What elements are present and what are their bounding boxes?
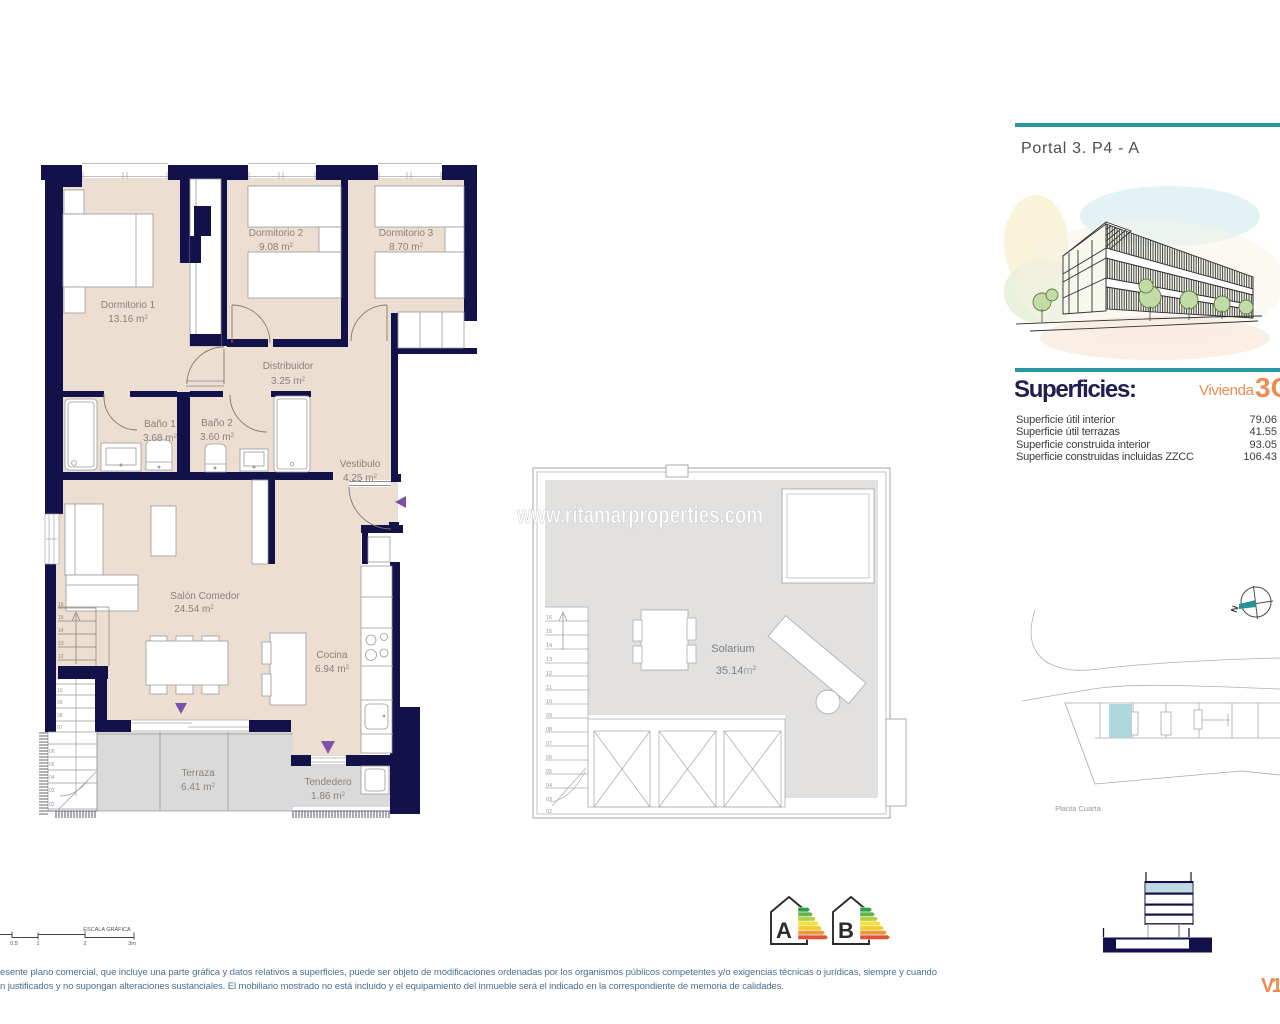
- svg-text:10: 10: [546, 699, 552, 705]
- svg-text:1.86 m2: 1.86 m2: [311, 791, 346, 802]
- svg-text:Vestibulo: Vestibulo: [340, 459, 381, 470]
- svg-text:10: 10: [57, 688, 63, 694]
- svg-text:24.54 m2: 24.54 m2: [174, 604, 214, 615]
- svg-text:n justificados y no supongan a: n justificados y no supongan alteracione…: [0, 981, 784, 992]
- svg-text:Planta Cuarta: Planta Cuarta: [1055, 804, 1102, 813]
- svg-text:2: 2: [83, 941, 86, 947]
- svg-text:A: A: [776, 918, 792, 943]
- svg-text:Dormitorio 1: Dormitorio 1: [101, 300, 156, 311]
- svg-text:Vivienda: Vivienda: [1199, 382, 1255, 399]
- svg-text:Distribuidor: Distribuidor: [263, 361, 314, 372]
- svg-text:Superficie construidas incluid: Superficie construidas incluidas ZZCC: [1016, 451, 1194, 463]
- svg-text:07: 07: [546, 741, 552, 747]
- svg-text:6.94 m2: 6.94 m2: [315, 664, 350, 675]
- svg-text:13: 13: [58, 641, 64, 647]
- svg-text:05: 05: [546, 769, 552, 775]
- svg-text:15: 15: [58, 615, 64, 621]
- svg-text:0.5: 0.5: [10, 941, 18, 947]
- svg-text:ESCALA GRÁFICA: ESCALA GRÁFICA: [83, 926, 131, 933]
- svg-text:Portal 3. P4 - A: Portal 3. P4 - A: [1021, 140, 1139, 157]
- svg-text:11: 11: [546, 685, 552, 691]
- svg-text:3m: 3m: [128, 941, 136, 947]
- svg-text:03: 03: [49, 788, 55, 794]
- svg-text:Superficie útil terrazas: Superficie útil terrazas: [1016, 426, 1121, 438]
- svg-text:02: 02: [546, 809, 552, 815]
- svg-text:V10: V10: [1261, 975, 1280, 997]
- svg-text:09: 09: [57, 700, 63, 706]
- svg-text:Tendedero: Tendedero: [304, 777, 352, 788]
- svg-text:Cocina: Cocina: [316, 650, 348, 661]
- svg-text:13: 13: [546, 657, 552, 663]
- svg-text:Baño 2: Baño 2: [201, 418, 233, 429]
- svg-text:79.06: 79.06: [1249, 414, 1277, 426]
- svg-text:Salón Comedor: Salón Comedor: [170, 591, 240, 602]
- svg-text:3.60 m2: 3.60 m2: [200, 432, 235, 443]
- svg-text:12: 12: [58, 654, 64, 660]
- svg-text:3C: 3C: [1255, 372, 1280, 403]
- svg-text:9.08 m2: 9.08 m2: [259, 242, 294, 253]
- svg-text:14: 14: [58, 628, 64, 634]
- svg-text:Superficies:: Superficies:: [1014, 376, 1137, 403]
- svg-text:Superficie construida interior: Superficie construida interior: [1016, 439, 1150, 451]
- svg-text:Dormitorio 2: Dormitorio 2: [249, 228, 304, 239]
- svg-text:Superficie útil interior: Superficie útil interior: [1016, 414, 1115, 426]
- svg-text:3.68 m2: 3.68 m2: [143, 433, 178, 444]
- svg-text:02: 02: [49, 802, 55, 808]
- svg-text:Baño 1: Baño 1: [144, 419, 176, 430]
- svg-text:07: 07: [57, 725, 63, 731]
- svg-text:Dormitorio 3: Dormitorio 3: [379, 228, 434, 239]
- svg-text:93.05: 93.05: [1249, 439, 1277, 451]
- svg-text:1: 1: [36, 941, 39, 947]
- svg-text:6.41 m2: 6.41 m2: [181, 782, 216, 793]
- svg-text:16: 16: [58, 602, 64, 608]
- svg-text:12: 12: [546, 671, 552, 677]
- svg-text:B: B: [838, 918, 854, 943]
- svg-text:41.55: 41.55: [1249, 426, 1277, 438]
- svg-text:8.70 m2: 8.70 m2: [389, 242, 424, 253]
- svg-text:Terraza: Terraza: [181, 768, 215, 779]
- svg-text:08: 08: [546, 727, 552, 733]
- svg-text:3.25 m2: 3.25 m2: [271, 376, 306, 387]
- svg-text:16: 16: [546, 615, 552, 621]
- svg-text:09: 09: [546, 713, 552, 719]
- svg-text:05: 05: [49, 762, 55, 768]
- svg-text:esente plano comercial, que in: esente plano comercial, que incluye una …: [0, 967, 937, 978]
- svg-text:06: 06: [546, 755, 552, 761]
- svg-text:15: 15: [546, 629, 552, 635]
- svg-text:www.ritamarproperties.com: www.ritamarproperties.com: [516, 502, 763, 529]
- svg-text:106.43: 106.43: [1243, 451, 1277, 463]
- svg-text:06: 06: [49, 749, 55, 755]
- svg-text:14: 14: [546, 643, 552, 649]
- svg-text:08: 08: [57, 713, 63, 719]
- svg-text:35.14m2: 35.14m2: [716, 665, 757, 677]
- svg-text:04: 04: [49, 775, 55, 781]
- svg-text:04: 04: [546, 783, 552, 789]
- svg-text:Solarium: Solarium: [711, 643, 754, 655]
- svg-text:13.16 m2: 13.16 m2: [108, 314, 148, 325]
- svg-text:4.25 m2: 4.25 m2: [343, 473, 378, 484]
